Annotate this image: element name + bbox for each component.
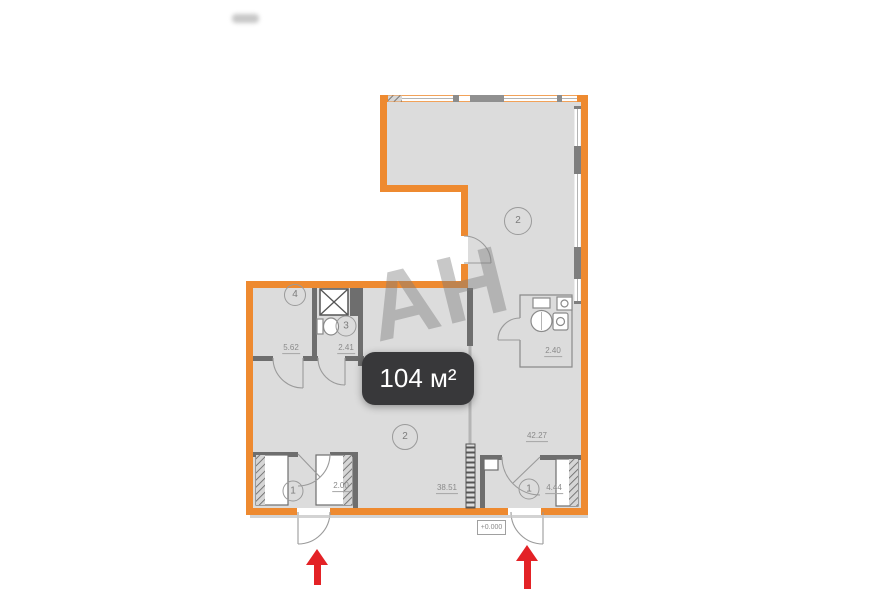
arrow-shaft bbox=[314, 564, 321, 585]
total-area-badge: 104 м² bbox=[362, 352, 474, 405]
facade-shadow bbox=[250, 515, 588, 518]
room-area-living-lower: 38.51 bbox=[436, 484, 458, 494]
entrance-arrow-icon bbox=[516, 545, 538, 589]
room-number-wc: 3 bbox=[336, 316, 357, 337]
window-top-wall bbox=[388, 95, 577, 102]
partner-logo-smudge bbox=[232, 14, 259, 23]
room-number-storage: 4 bbox=[284, 284, 306, 306]
room-number-living-lower: 2 bbox=[392, 424, 418, 450]
sink-icon bbox=[553, 313, 568, 330]
room-area-entry-left: 2.00 bbox=[332, 482, 350, 492]
room-number-entry-left: 1 bbox=[283, 481, 304, 502]
arrow-head bbox=[516, 545, 538, 561]
washing-machine-icon bbox=[557, 297, 572, 310]
floor-plan-page: АН 2 4 3 2 1 1 42.27 5.62 2.41 2.40 38.5… bbox=[0, 0, 881, 600]
entrance-arrow-icon bbox=[306, 549, 328, 585]
room-area-wc: 2.41 bbox=[337, 344, 355, 354]
arrow-head bbox=[306, 549, 328, 565]
arrow-shaft bbox=[524, 560, 531, 589]
window-right-wall bbox=[574, 106, 581, 304]
vent-shaft-icon bbox=[320, 289, 348, 315]
room-area-storage: 5.62 bbox=[282, 344, 300, 354]
room-number-entry-right: 1 bbox=[519, 479, 540, 500]
room-number-living-upper: 2 bbox=[504, 207, 532, 235]
room-area-bathroom: 2.40 bbox=[544, 347, 562, 357]
room-area-entry-right: 4.44 bbox=[545, 484, 563, 494]
level-marker: +0.000 bbox=[477, 520, 506, 535]
toilet-icon bbox=[531, 298, 552, 332]
room-area-living-upper: 42.27 bbox=[526, 432, 548, 442]
